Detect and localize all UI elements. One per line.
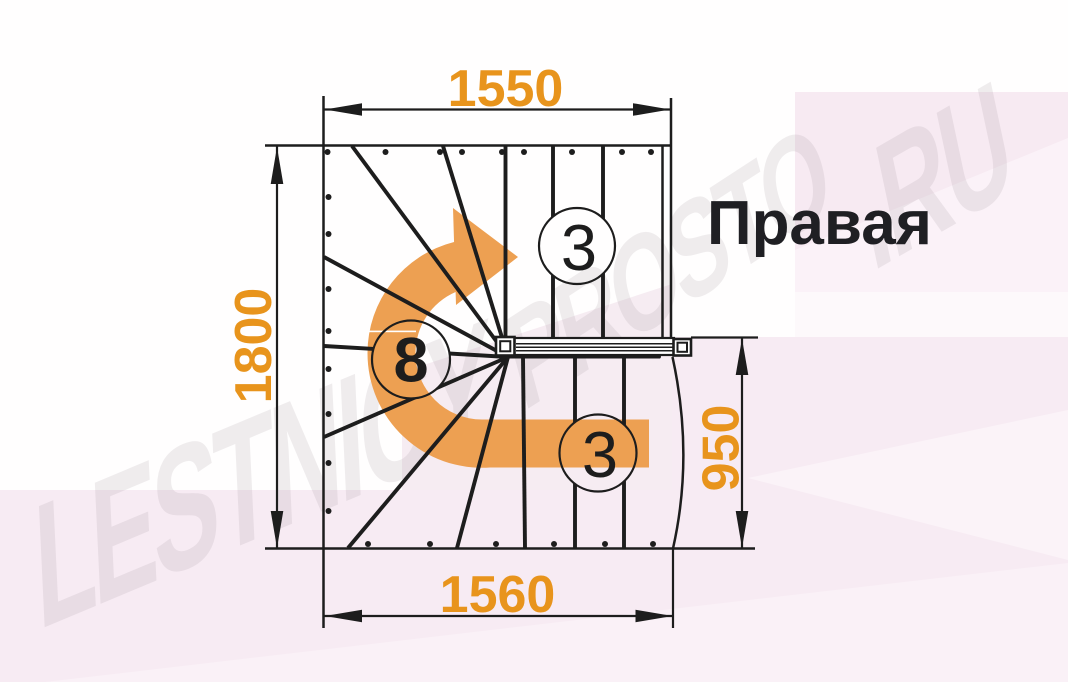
svg-text:1560: 1560 [440,566,556,624]
svg-text:8: 8 [393,326,428,396]
svg-text:1550: 1550 [448,60,564,118]
svg-text:3: 3 [561,211,597,284]
svg-text:Правая: Правая [707,189,932,258]
svg-text:3: 3 [582,418,618,491]
svg-text:950: 950 [693,405,751,492]
svg-text:1800: 1800 [225,288,283,404]
